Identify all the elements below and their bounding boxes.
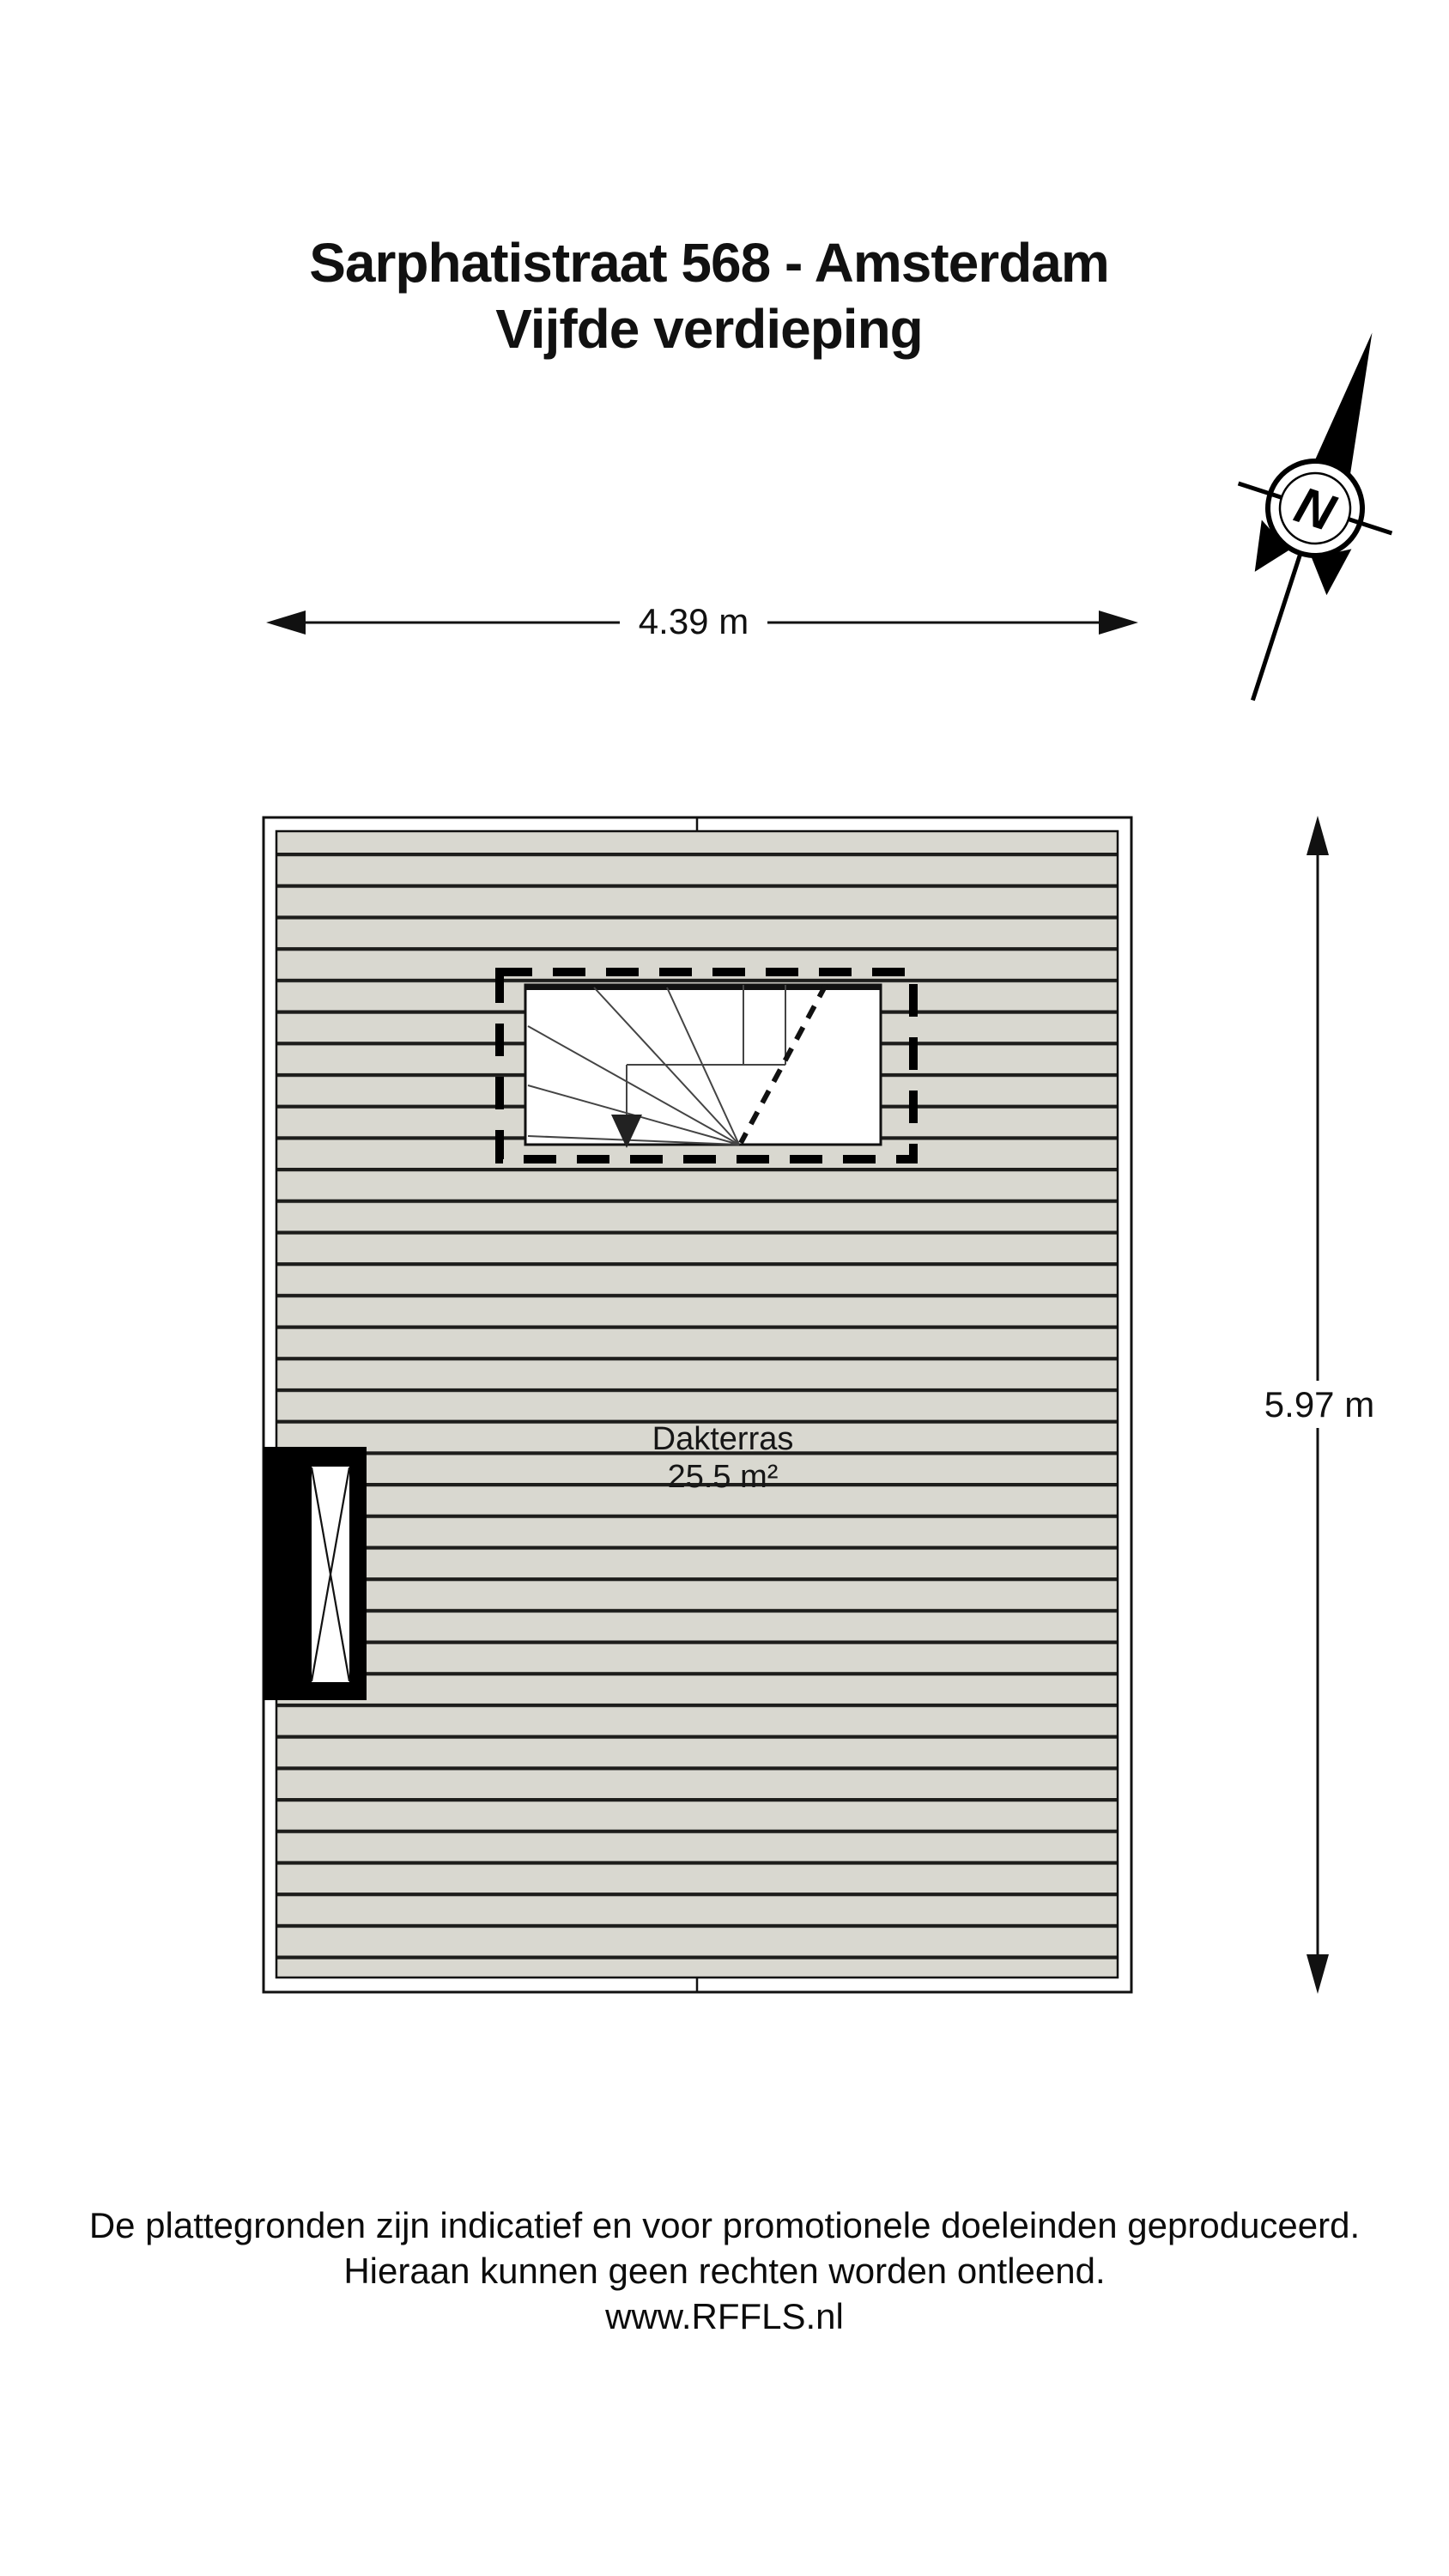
north-compass-icon: N [1176, 307, 1449, 725]
height-dimension-label: 5.97 m [1264, 1384, 1374, 1425]
room-area: 25.5 m² [652, 1458, 794, 1496]
floorplan-page: N Sarphatistraat 568 - Amsterdam Vijfde … [0, 0, 1449, 2576]
room-label: Dakterras 25.5 m² [652, 1420, 794, 1496]
website-url: www.RFFLS.nl [89, 2294, 1360, 2340]
title-floor: Vijfde verdieping [309, 296, 1109, 362]
arrow-right-icon [1099, 611, 1138, 635]
room-name: Dakterras [652, 1420, 794, 1458]
disclaimer-line-2: Hieraan kunnen geen rechten worden ontle… [89, 2249, 1360, 2294]
title-address: Sarphatistraat 568 - Amsterdam [309, 230, 1109, 296]
arrow-down-icon [1307, 1954, 1329, 1994]
floorplan-canvas: N [0, 0, 1449, 2576]
roof-hatch [264, 1447, 367, 1700]
stairwell [500, 972, 913, 1159]
page-title: Sarphatistraat 568 - Amsterdam Vijfde ve… [309, 230, 1109, 362]
width-dimension-label: 4.39 m [639, 601, 749, 642]
disclaimer-line-1: De plattegronden zijn indicatief en voor… [89, 2203, 1360, 2249]
footer-disclaimer: De plattegronden zijn indicatief en voor… [89, 2203, 1360, 2340]
arrow-up-icon [1307, 816, 1329, 855]
arrow-left-icon [266, 611, 306, 635]
